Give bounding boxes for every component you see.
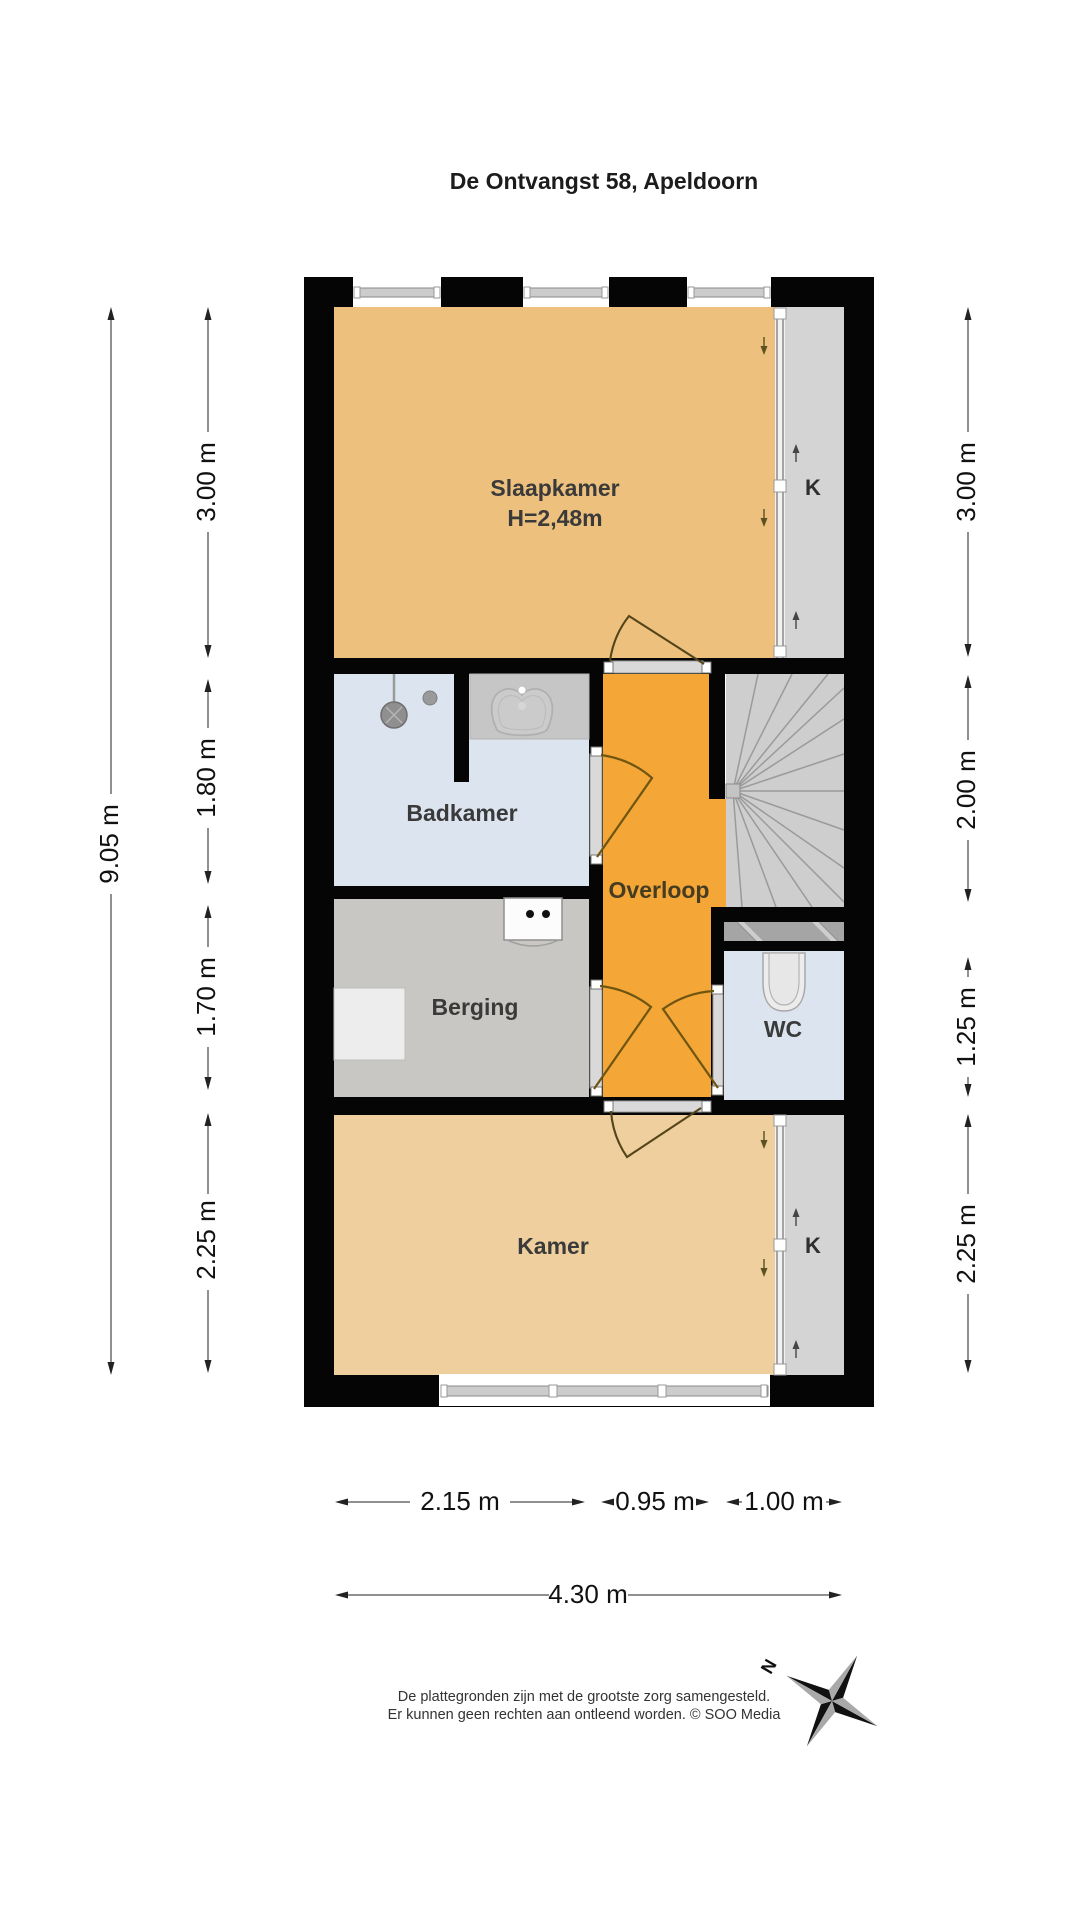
svg-text:De Ontvangst 58, Apeldoorn: De Ontvangst 58, Apeldoorn [450,168,758,194]
svg-text:Slaapkamer: Slaapkamer [490,475,619,501]
svg-text:1.00 m: 1.00 m [744,1486,824,1516]
svg-text:1.70 m: 1.70 m [191,957,221,1037]
svg-text:1.80 m: 1.80 m [191,738,221,818]
svg-text:2.15 m: 2.15 m [420,1486,500,1516]
svg-text:WC: WC [764,1016,802,1042]
svg-text:0.95 m: 0.95 m [615,1486,695,1516]
svg-text:3.00 m: 3.00 m [951,442,981,522]
svg-text:Overloop: Overloop [609,877,710,903]
svg-text:3.00 m: 3.00 m [191,442,221,522]
svg-text:K: K [805,1233,821,1258]
svg-text:2.00 m: 2.00 m [951,750,981,830]
svg-text:4.30 m: 4.30 m [548,1579,628,1609]
svg-text:De plattegronden zijn met de g: De plattegronden zijn met de grootste zo… [398,1689,770,1705]
svg-text:2.25 m: 2.25 m [951,1204,981,1284]
svg-text:1.25 m: 1.25 m [951,987,981,1067]
svg-text:2.25 m: 2.25 m [191,1200,221,1280]
svg-text:K: K [805,475,821,500]
svg-text:9.05 m: 9.05 m [94,804,124,884]
svg-text:Badkamer: Badkamer [406,800,517,826]
svg-text:Er kunnen geen rechten aan ont: Er kunnen geen rechten aan ontleend word… [388,1707,782,1723]
svg-text:H=2,48m: H=2,48m [507,505,602,531]
svg-text:Kamer: Kamer [517,1233,589,1259]
svg-text:Berging: Berging [432,994,519,1020]
